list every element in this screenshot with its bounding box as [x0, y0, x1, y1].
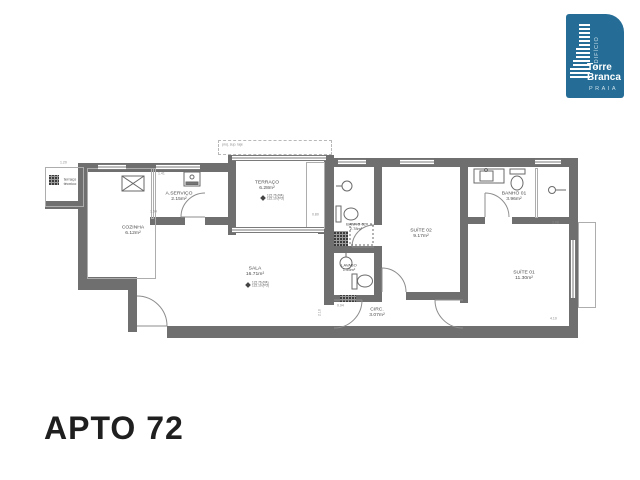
dimension-label: 3.08 — [552, 221, 559, 225]
window-sill-outline — [578, 222, 596, 308]
logo-subtitle-text: PRAIA — [589, 86, 618, 92]
entry-door-arc — [137, 296, 167, 326]
room-label-cozinha: COZINHA6.12m² — [122, 224, 144, 235]
terrace-parapet — [232, 155, 326, 161]
torre-branca-logo: EDIFÍCIO TorreBranca PRAIA — [566, 14, 624, 98]
room-label-banho02: BANHO 022.78m² — [346, 222, 366, 231]
toilet-icon — [336, 206, 358, 222]
dimension-label: 0.80 — [312, 213, 319, 217]
floor-plan: terraçotécnico COZINHA6.12m² A.SERVIÇO2.… — [0, 0, 640, 480]
door-threshold-hatch — [340, 295, 356, 302]
dimension-label: 1.54 — [150, 210, 157, 214]
room-label-suite01: SUÍTE 0111.30m² — [513, 269, 535, 280]
room-label-banho01: BANHO 013.96m² — [502, 190, 527, 201]
projection-label: proj. sup. laje — [222, 143, 243, 147]
technical-terrace-hatch — [49, 175, 59, 185]
shower-partition-line — [535, 168, 538, 218]
dimension-label: 0.94 — [337, 304, 344, 308]
technical-terrace-outline — [45, 167, 84, 207]
suite01-door-arc — [435, 300, 463, 328]
vanity-icon — [474, 169, 504, 184]
logo-name-text: TorreBranca — [587, 63, 621, 83]
wall — [374, 163, 382, 225]
wall — [128, 283, 137, 332]
room-label-suite02: SUÍTE 029.17m² — [410, 227, 432, 238]
lavabo-toilet-icon — [352, 274, 373, 289]
wall — [205, 217, 236, 225]
shower-head-icon — [549, 187, 567, 194]
room-label-terraco: TERRAÇO6.28m² — [255, 179, 279, 190]
window — [570, 240, 576, 298]
logo-edificio-text: EDIFÍCIO — [594, 20, 600, 68]
dimension-label: 4.10 — [550, 317, 557, 321]
window — [98, 164, 126, 170]
room-label-terraco-tecnico: terraçotécnico — [64, 177, 77, 186]
apartment-title: APTO 72 — [44, 410, 184, 447]
wall — [324, 155, 334, 305]
suite02-door-arc — [382, 268, 406, 292]
dimension-label: 1.41 — [158, 172, 165, 176]
room-label-sala: SALA16.71m² — [246, 265, 264, 276]
terrace-sliding-door — [232, 227, 324, 233]
room-label-lavabo: LAVABO1.55m² — [341, 263, 356, 272]
level-annotation-terraco: 122.76 (PA)122.10 (PO) — [267, 194, 284, 200]
wall — [512, 217, 578, 224]
sink-icon — [336, 181, 352, 191]
wall — [324, 295, 340, 302]
wall — [374, 248, 382, 298]
window — [338, 159, 366, 165]
wall — [167, 326, 578, 338]
washer-icon — [184, 172, 200, 186]
room-label-a-servico: A.SERVIÇO2.15m² — [166, 190, 193, 201]
wall — [463, 217, 485, 224]
dimension-label: 2.10 — [318, 309, 322, 316]
wall — [460, 163, 468, 303]
room-label-circ: CIRC.3.07m² — [369, 306, 384, 317]
banho01-toilet-icon — [510, 169, 525, 190]
level-annotation-sala: 122.76 (PA)122.10 (PO) — [252, 281, 269, 287]
window — [156, 164, 200, 170]
window — [400, 159, 434, 165]
dimension-label: 1.20 — [60, 161, 67, 165]
wall — [406, 292, 467, 300]
terrace-planter-outline — [306, 162, 325, 229]
window — [535, 159, 561, 165]
shaft-hatch — [334, 231, 348, 246]
wall — [354, 295, 382, 302]
